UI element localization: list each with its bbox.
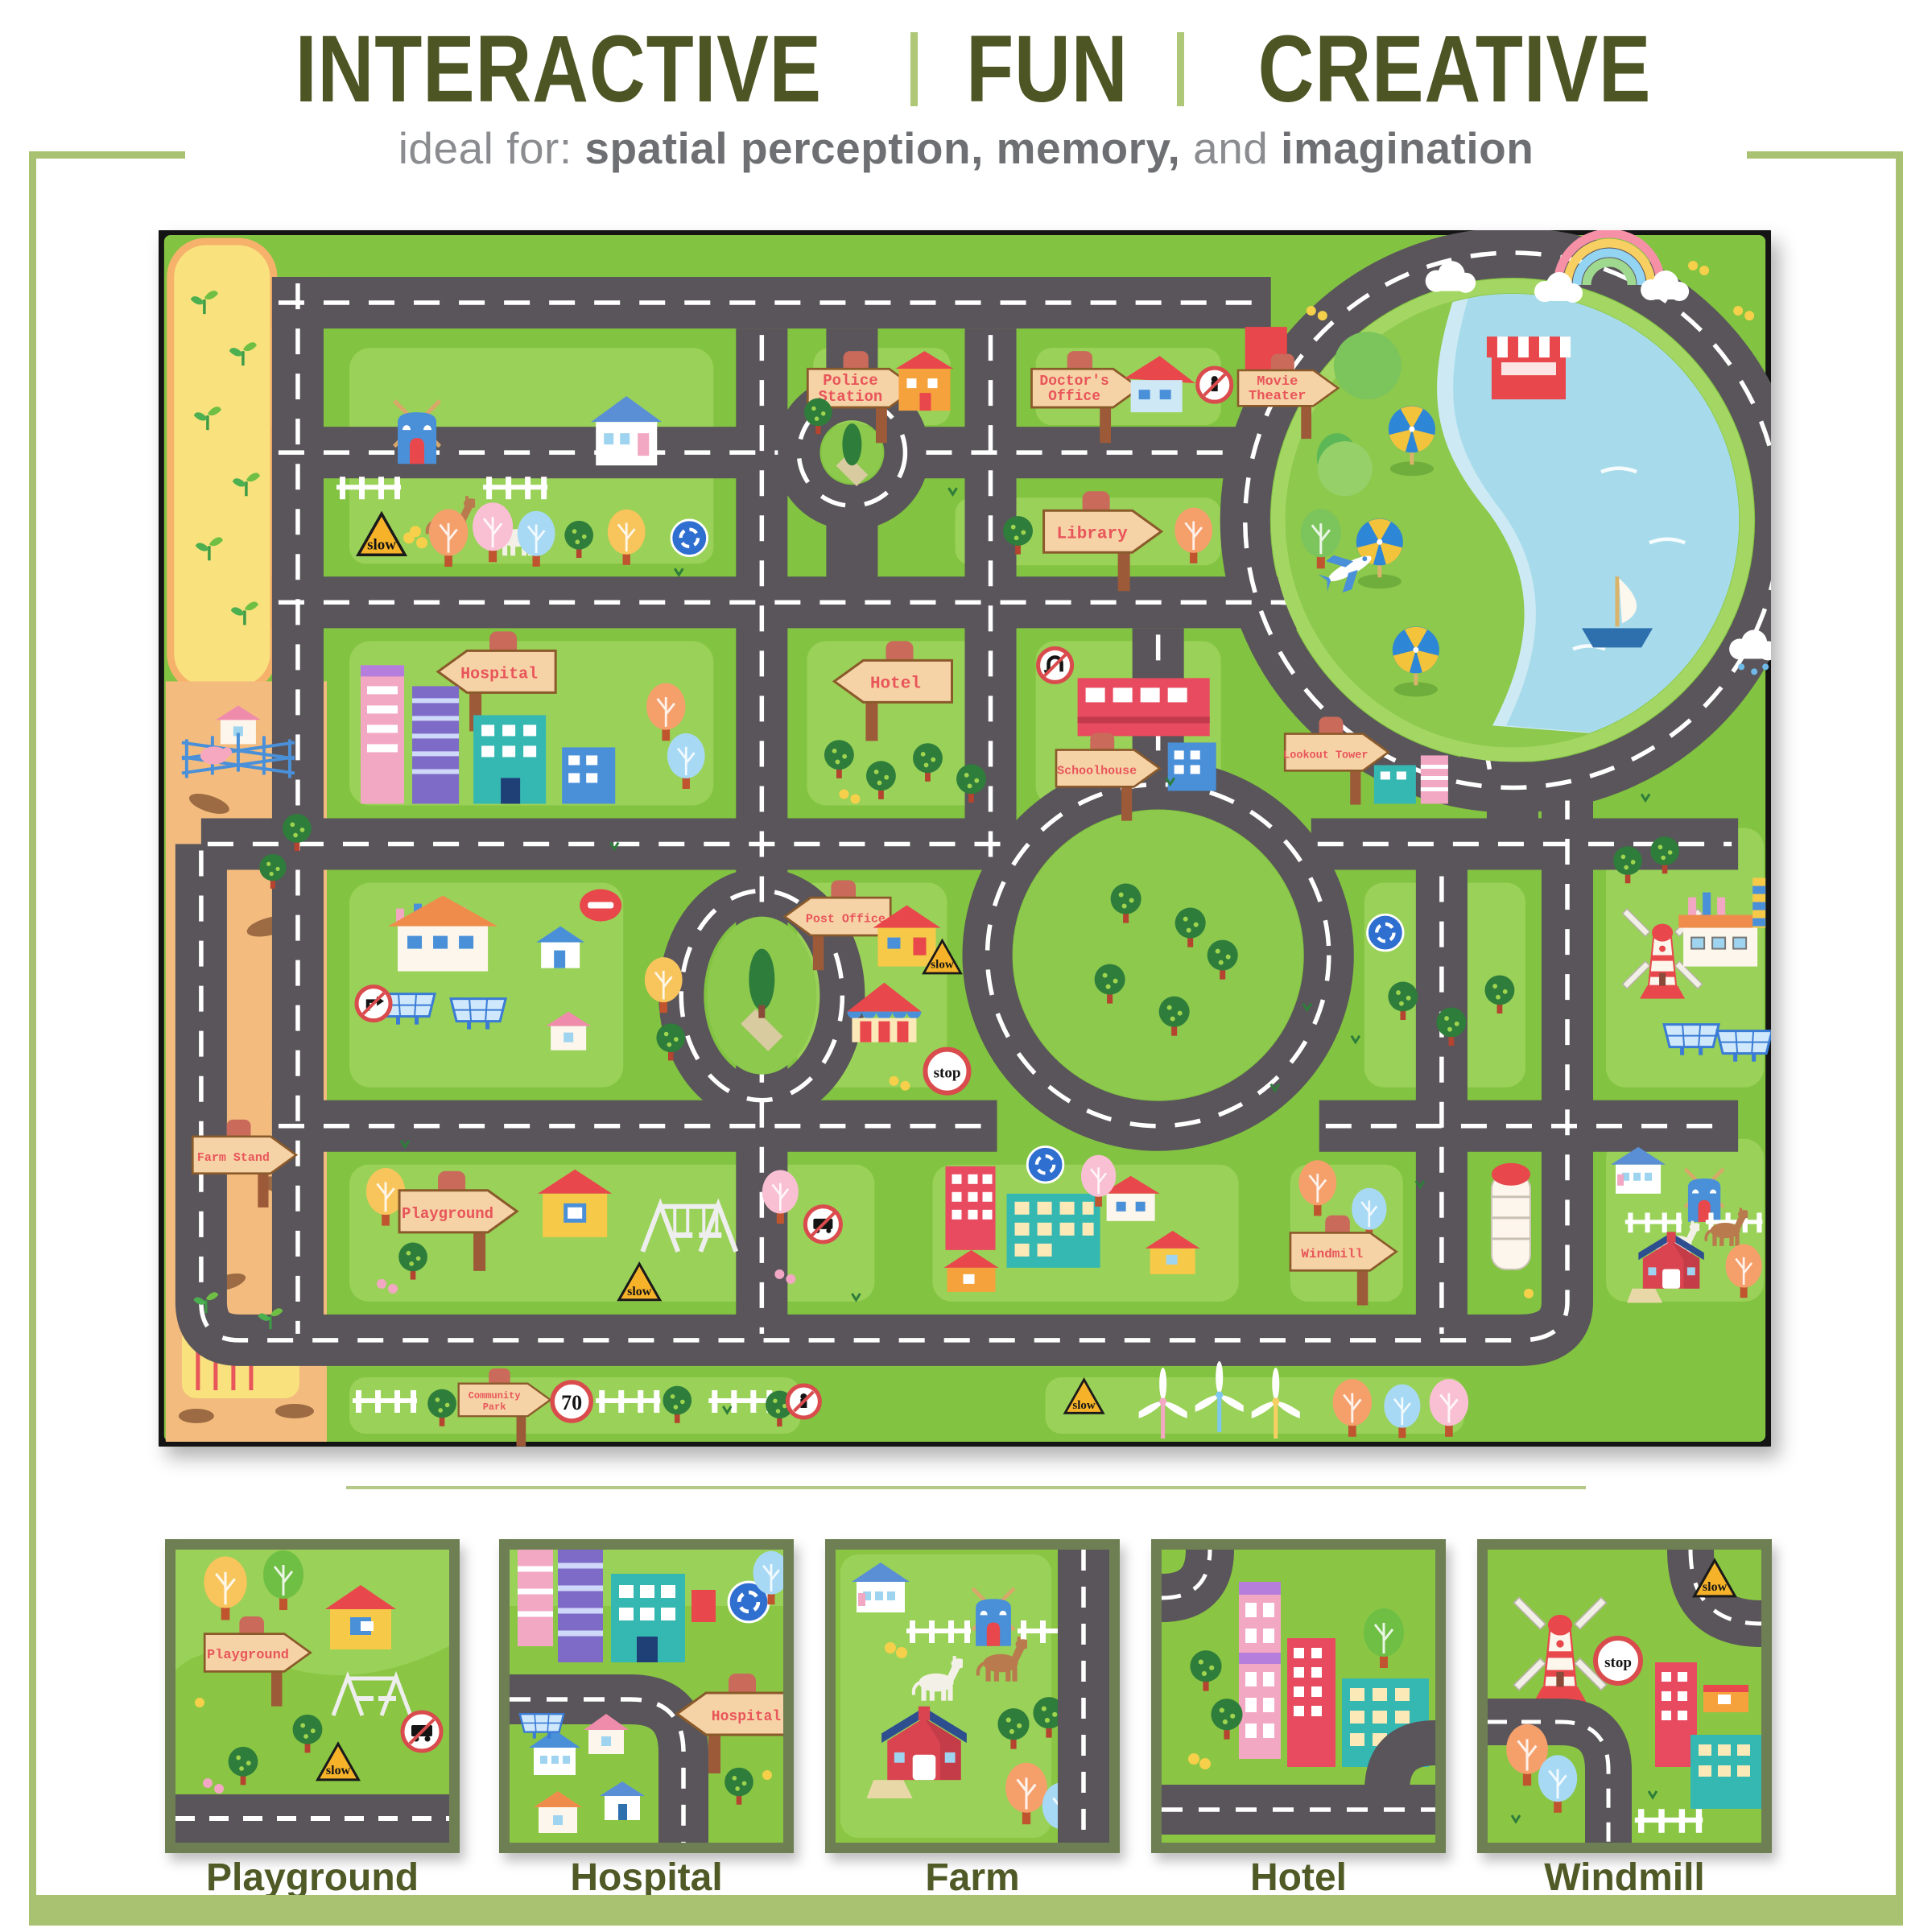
speed-limit-sign: 70	[552, 1382, 591, 1421]
svg-text:Post Office: Post Office	[806, 913, 885, 927]
beach-stand	[1487, 336, 1571, 399]
svg-text:slow: slow	[627, 1285, 652, 1298]
no-pedestrian-sign	[1198, 368, 1232, 402]
thumbnail-farm	[825, 1539, 1120, 1853]
silo	[1492, 1163, 1530, 1269]
thumbnail-label: Windmill	[1477, 1856, 1772, 1900]
svg-text:slow: slow	[326, 1764, 351, 1777]
no-entry-sign	[580, 890, 621, 922]
stop-sign: stop	[925, 1050, 968, 1093]
svg-text:Hospital: Hospital	[460, 665, 538, 683]
play-mat: Police Station Doctor's Office	[159, 230, 1771, 1447]
thumbnail-playground: Playground slow	[165, 1539, 460, 1853]
svg-text:Hotel: Hotel	[870, 675, 921, 693]
thumbnail-hotel	[1151, 1539, 1446, 1853]
frame-right	[1896, 151, 1903, 1926]
no-bus-sign	[805, 1207, 840, 1242]
tower-pink	[361, 665, 404, 803]
thumbnail-label: Farm	[825, 1856, 1120, 1900]
bottom-accent-bar	[29, 1895, 1903, 1926]
svg-text:slow: slow	[367, 536, 396, 553]
svg-text:Police: Police	[823, 372, 877, 390]
product-infographic: INTERACTIVE FUN CREATIVE ideal for: spat…	[0, 0, 1932, 1932]
svg-text:Office: Office	[1048, 389, 1100, 405]
svg-text:Windmill: Windmill	[1301, 1247, 1363, 1261]
svg-text:70: 70	[561, 1391, 582, 1414]
frame-left	[29, 151, 36, 1926]
no-uturn-sign	[1038, 648, 1072, 682]
svg-text:Farm Stand: Farm Stand	[197, 1151, 270, 1165]
roundabout-sign	[1368, 914, 1404, 951]
headline-word-fun: FUN	[966, 14, 1128, 124]
section-divider	[346, 1486, 1586, 1489]
thumbnail-label: Playground	[165, 1856, 460, 1900]
crop-field-strip	[171, 242, 274, 689]
thumbnail-windmill: slow stop	[1477, 1539, 1772, 1853]
svg-text:stop: stop	[934, 1065, 961, 1082]
svg-text:slow: slow	[1703, 1580, 1728, 1594]
svg-text:slow: slow	[931, 959, 954, 972]
svg-text:Library: Library	[1056, 525, 1128, 543]
headline-separator-bar	[910, 32, 918, 106]
headline-word-creative: CREATIVE	[1257, 14, 1651, 124]
svg-text:Doctor's: Doctor's	[1039, 374, 1108, 390]
roundabout-sign	[671, 520, 708, 556]
svg-text:Movie: Movie	[1257, 374, 1298, 390]
thumbnail-label: Hotel	[1151, 1856, 1446, 1900]
svg-text:Hospital: Hospital	[712, 1709, 782, 1725]
roundabout-sign	[1027, 1146, 1063, 1183]
tower-purple	[412, 686, 459, 803]
subtitle: ideal for: spatial perception, memory, a…	[0, 122, 1932, 174]
svg-text:Theater: Theater	[1249, 389, 1306, 404]
svg-text:Playground: Playground	[207, 1648, 289, 1663]
hotel-tower	[1239, 1582, 1281, 1759]
striped-chimney	[1752, 878, 1765, 928]
svg-text:Community: Community	[469, 1390, 521, 1402]
svg-text:Park: Park	[483, 1402, 506, 1413]
frame-top-right	[1747, 151, 1903, 159]
svg-text:slow: slow	[1072, 1399, 1096, 1412]
headline: INTERACTIVE FUN CREATIVE	[0, 14, 1932, 124]
headline-word-interactive: INTERACTIVE	[295, 14, 822, 124]
frame-top-left	[29, 151, 185, 159]
stop-sign: stop	[1596, 1638, 1641, 1683]
house-orange	[1703, 1685, 1748, 1712]
no-right-turn-sign	[357, 987, 390, 1021]
svg-text:Lookout Tower: Lookout Tower	[1283, 749, 1368, 762]
headline-separator-bar	[1177, 32, 1184, 106]
svg-text:stop: stop	[1604, 1654, 1632, 1671]
school-building	[1078, 678, 1210, 736]
no-bus-sign	[402, 1712, 441, 1751]
no-pedestrian-sign	[787, 1385, 819, 1418]
svg-text:Playground: Playground	[402, 1205, 493, 1223]
svg-text:Schoolhouse: Schoolhouse	[1057, 764, 1137, 778]
thumbnail-label: Hospital	[499, 1856, 794, 1900]
play-mat-photo: Police Station Doctor's Office	[159, 230, 1771, 1447]
thumbnail-hospital: Hospital	[499, 1539, 794, 1853]
